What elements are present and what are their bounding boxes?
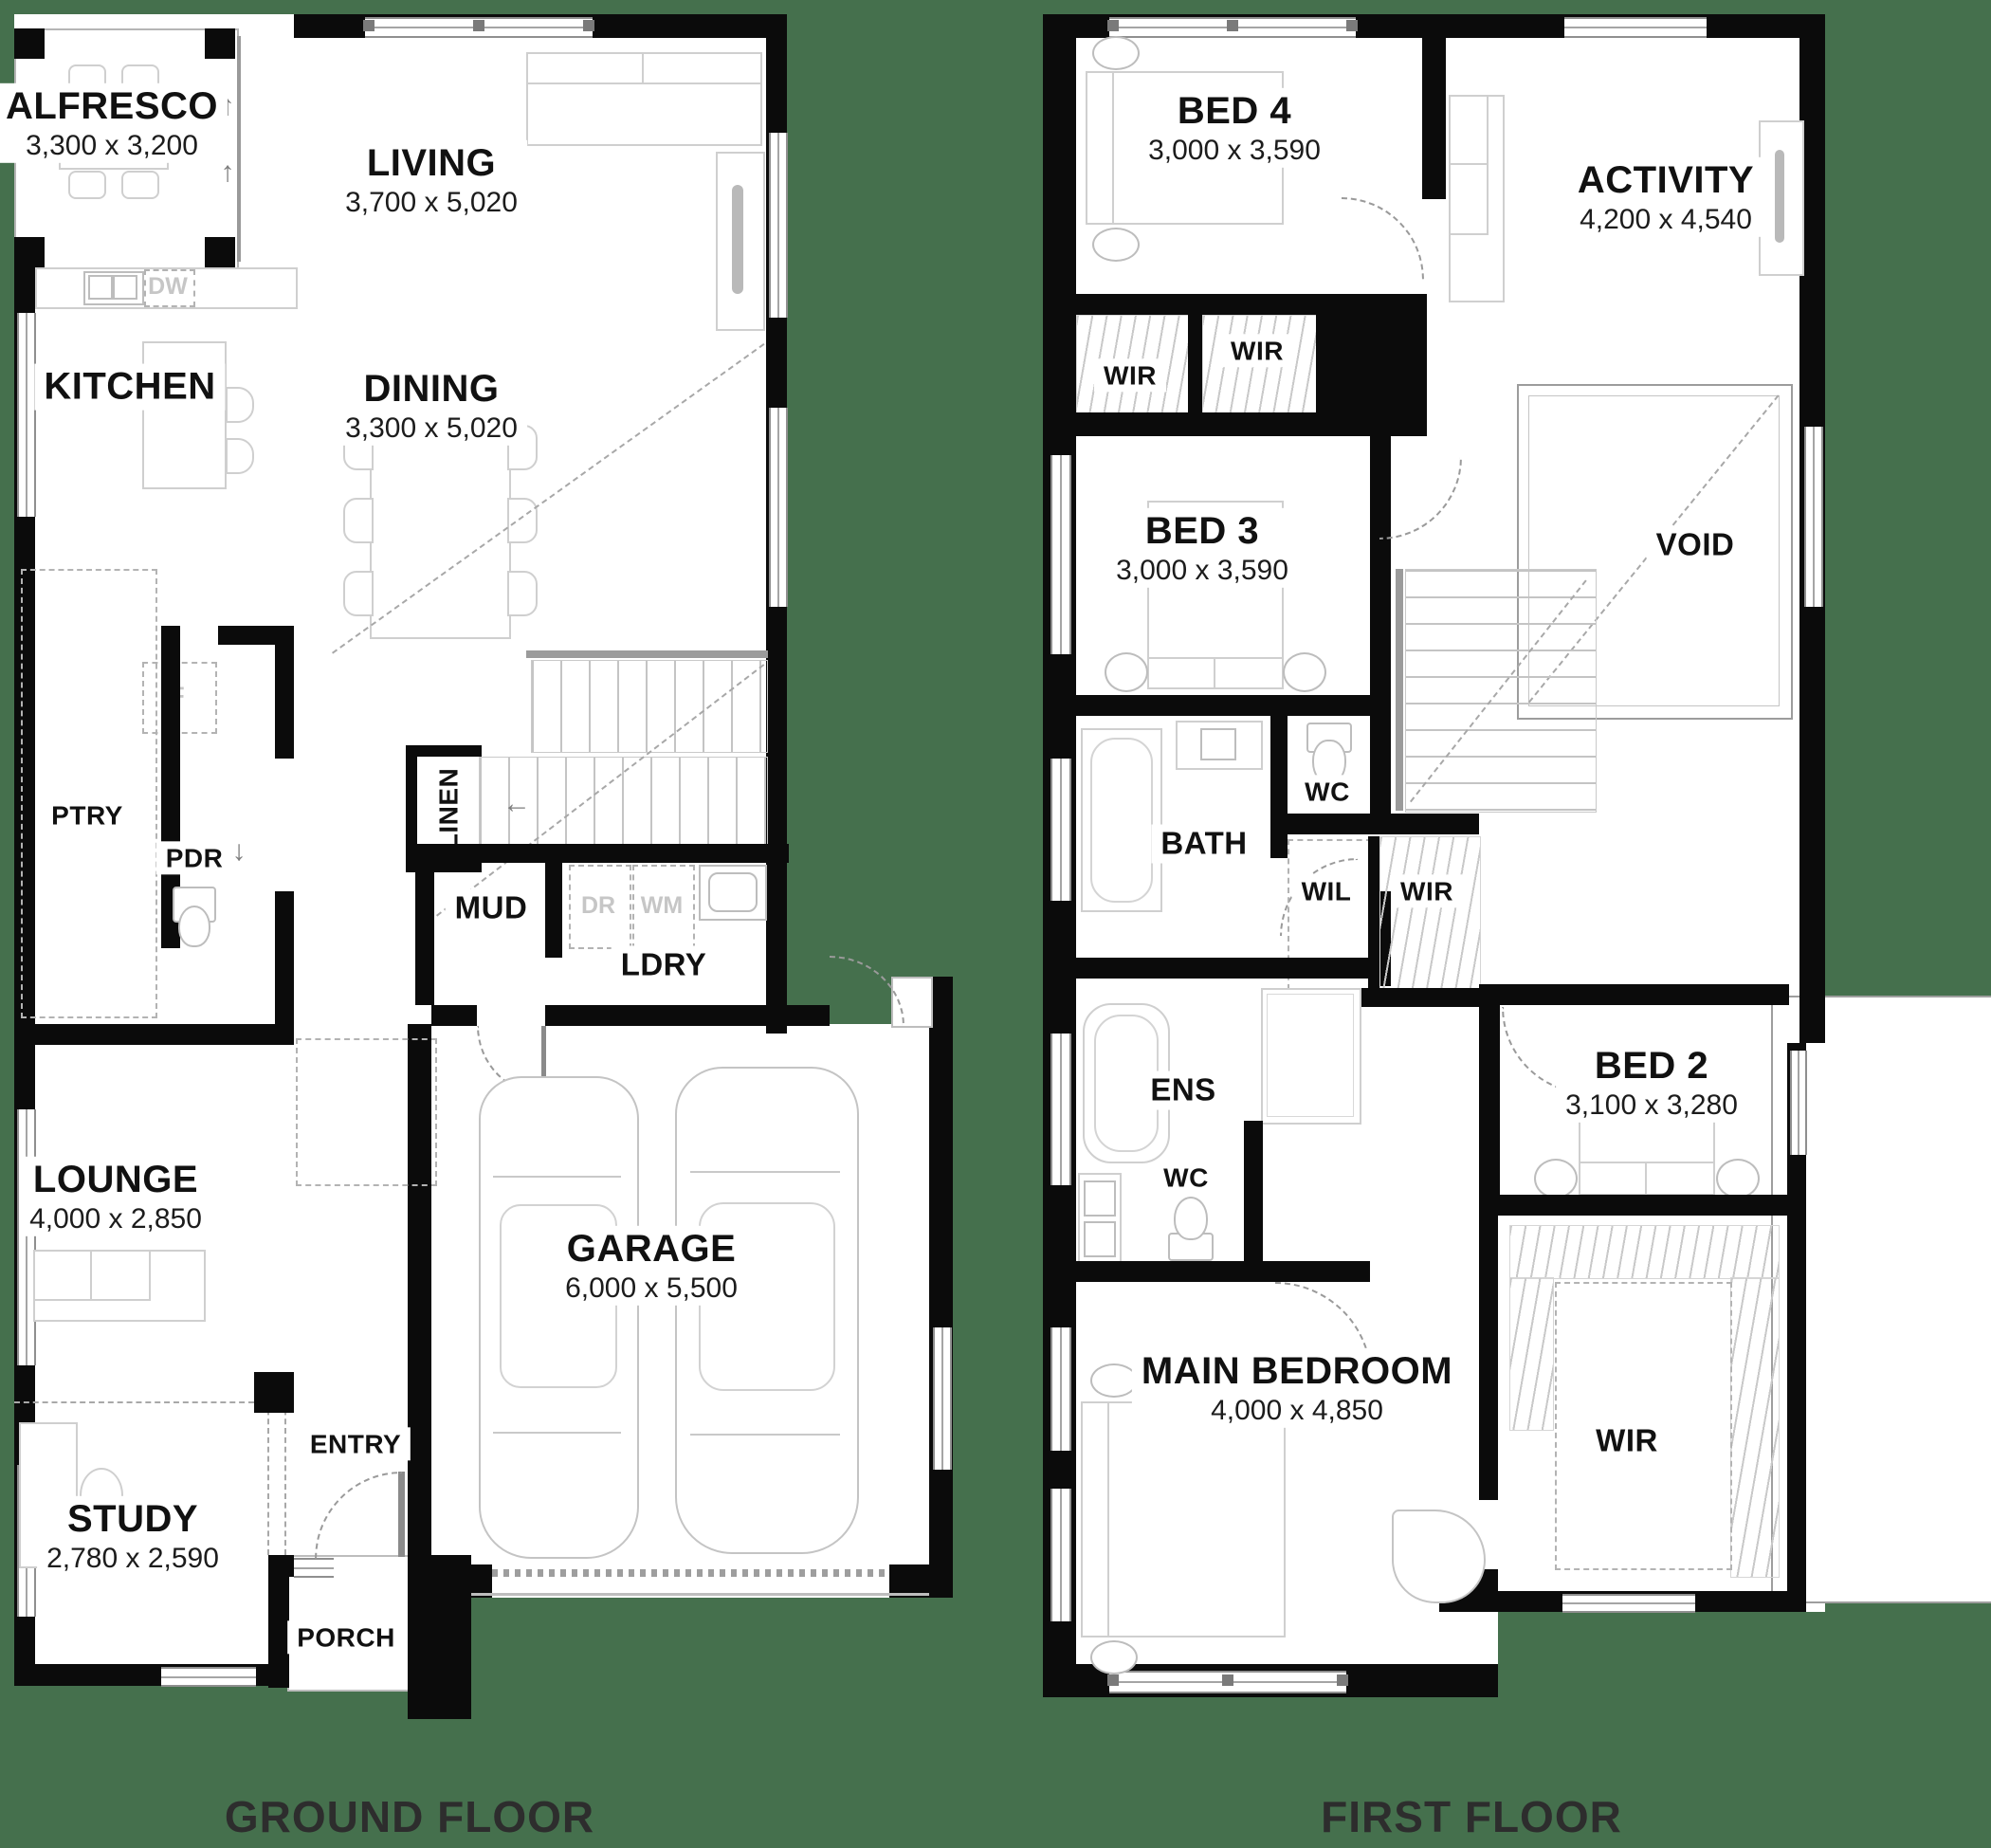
sofa-cushion bbox=[526, 52, 646, 84]
sofa-cushion bbox=[33, 1250, 94, 1301]
wall bbox=[431, 1005, 477, 1026]
room-label-wil: WIL bbox=[1292, 874, 1361, 907]
wardrobe bbox=[1509, 1277, 1554, 1431]
sliding-door-track bbox=[237, 36, 241, 262]
wall bbox=[1076, 958, 1370, 979]
wall bbox=[1188, 315, 1202, 412]
wall bbox=[929, 977, 953, 1598]
wall bbox=[545, 1005, 830, 1026]
window bbox=[933, 1327, 952, 1470]
wall bbox=[1043, 294, 1427, 315]
room-label-main-bedroom: MAIN BEDROOM4,000 x 4,850 bbox=[1132, 1348, 1462, 1428]
room-label-kitchen: KITCHEN bbox=[34, 364, 225, 411]
washer-label: WM bbox=[641, 892, 683, 919]
room-label-pdr: PDR bbox=[156, 841, 233, 874]
room-label-dining: DINING3,300 x 5,020 bbox=[336, 366, 527, 446]
room-label-ldry: LDRY bbox=[612, 946, 717, 985]
wall bbox=[205, 237, 235, 267]
window bbox=[1050, 455, 1071, 654]
room-label-bath: BATH bbox=[1151, 825, 1256, 864]
wall bbox=[1370, 716, 1391, 830]
window bbox=[17, 1109, 36, 1365]
room-label-void: VOID bbox=[1647, 526, 1744, 565]
car-rear-window bbox=[493, 1432, 621, 1434]
bed-headboard bbox=[1081, 1401, 1109, 1638]
room-label-mud: MUD bbox=[446, 889, 538, 928]
window bbox=[294, 1558, 334, 1578]
wall bbox=[1479, 1005, 1500, 1197]
sofa-cushion bbox=[1449, 95, 1489, 167]
driveway-edge bbox=[471, 1593, 929, 1596]
wall bbox=[545, 863, 562, 958]
window bbox=[769, 408, 788, 607]
window bbox=[1804, 427, 1823, 607]
room-label-porch: PORCH bbox=[287, 1620, 405, 1654]
stool bbox=[226, 438, 254, 474]
room-label-wc-ens: WC bbox=[1154, 1161, 1218, 1194]
bedside-table bbox=[1090, 1640, 1138, 1674]
vanity-sink bbox=[1084, 1221, 1116, 1257]
plan-base bbox=[14, 1034, 294, 1686]
wardrobe bbox=[1730, 1277, 1780, 1578]
plan-notch bbox=[1498, 1612, 1825, 1697]
stairs bbox=[531, 660, 768, 753]
floorplan-canvas: ↑ ↑ DW bbox=[0, 0, 1991, 1848]
ground-floor-title: GROUND FLOOR bbox=[225, 1791, 594, 1842]
window bbox=[17, 313, 36, 517]
bathtub-inner bbox=[1090, 738, 1153, 903]
wall bbox=[1422, 38, 1446, 199]
window bbox=[1790, 1051, 1807, 1155]
window-mullion bbox=[1107, 1674, 1119, 1686]
room-label-garage: GARAGE6,000 x 5,500 bbox=[556, 1226, 747, 1306]
sofa-cushion bbox=[642, 52, 762, 84]
window bbox=[1562, 1594, 1695, 1613]
window bbox=[769, 133, 788, 318]
bedside-table bbox=[1534, 1159, 1578, 1198]
stair-handrail bbox=[526, 650, 768, 658]
wall bbox=[275, 645, 294, 759]
bedside-table bbox=[1283, 652, 1326, 692]
wall bbox=[283, 1555, 294, 1577]
wall bbox=[14, 237, 45, 267]
shower-screen bbox=[1267, 994, 1354, 1117]
tv-icon bbox=[1775, 150, 1784, 243]
hall-arrow-icon: ↓ bbox=[232, 835, 247, 868]
bed-base bbox=[1579, 1162, 1649, 1196]
sofa-cushion bbox=[90, 1250, 151, 1301]
room-label-activity: ACTIVITY4,200 x 4,540 bbox=[1568, 157, 1763, 237]
stair-direction-arrow: ← bbox=[502, 788, 531, 820]
chair bbox=[507, 571, 538, 616]
chair bbox=[343, 571, 374, 616]
wall bbox=[14, 1024, 294, 1045]
room-label-alfresco: ALFRESCO3,300 x 3,200 bbox=[0, 83, 228, 163]
room-label-wc-bath: WC bbox=[1295, 775, 1360, 808]
sink-bowl bbox=[113, 275, 137, 300]
window bbox=[1050, 759, 1071, 901]
wall bbox=[1043, 695, 1375, 716]
room-label-bed2: BED 23,100 x 3,280 bbox=[1556, 1043, 1747, 1123]
dryer-label: DR bbox=[581, 892, 615, 919]
window-mullion bbox=[363, 20, 374, 31]
dashed-partition bbox=[14, 1401, 254, 1403]
window bbox=[1050, 1327, 1071, 1451]
room-label-ens: ENS bbox=[1141, 1071, 1225, 1110]
window-mullion bbox=[1107, 20, 1119, 31]
wall bbox=[205, 28, 235, 59]
room-label-ptry: PTRY bbox=[42, 798, 133, 832]
room-label-lounge: LOUNGE4,000 x 2,850 bbox=[20, 1157, 211, 1236]
stool bbox=[226, 387, 254, 423]
car-windshield bbox=[690, 1171, 840, 1173]
chair bbox=[507, 498, 538, 543]
wall bbox=[1285, 814, 1479, 834]
wardrobe bbox=[1379, 836, 1481, 990]
bedside-table bbox=[1092, 228, 1140, 262]
wall bbox=[1479, 1216, 1498, 1500]
wall bbox=[275, 891, 294, 1024]
room-label-wir: WIR bbox=[1094, 358, 1166, 392]
wall bbox=[14, 28, 45, 59]
window-mullion bbox=[473, 20, 484, 31]
wall bbox=[1479, 1195, 1787, 1216]
chair bbox=[121, 171, 159, 199]
room-label-bed3: BED 33,000 x 3,590 bbox=[1106, 508, 1298, 588]
stairs bbox=[1405, 569, 1597, 813]
window-mullion bbox=[1222, 1674, 1233, 1686]
room-label-wir: WIR bbox=[1391, 874, 1463, 907]
stair-handrail bbox=[1396, 569, 1403, 811]
first-floor-title: FIRST FLOOR bbox=[1321, 1791, 1622, 1842]
room-label-study: STUDY2,780 x 2,590 bbox=[37, 1496, 228, 1576]
wall bbox=[254, 1372, 294, 1413]
garage-door bbox=[492, 1569, 889, 1577]
car-rear-window bbox=[690, 1434, 840, 1436]
window-mullion bbox=[1337, 1674, 1348, 1686]
bed bbox=[1081, 1401, 1286, 1638]
window bbox=[1564, 17, 1707, 38]
window-mullion bbox=[1346, 20, 1358, 31]
room-label-bed4: BED 43,000 x 3,590 bbox=[1139, 88, 1330, 168]
sink-bowl bbox=[88, 275, 113, 300]
wall bbox=[1043, 412, 1318, 436]
bedside-table bbox=[1090, 1363, 1138, 1398]
window-mullion bbox=[583, 20, 594, 31]
window-mullion bbox=[1227, 20, 1238, 31]
chair bbox=[68, 171, 106, 199]
wall bbox=[218, 626, 294, 645]
vanity-sink bbox=[1084, 1180, 1116, 1217]
car-windshield bbox=[493, 1176, 621, 1178]
chair bbox=[343, 498, 374, 543]
sofa-cushion bbox=[1449, 163, 1489, 235]
wall bbox=[1479, 984, 1789, 1005]
room-label-entry: ENTRY bbox=[301, 1427, 411, 1460]
room-label-wir-main: WIR bbox=[1586, 1422, 1668, 1461]
toilet-bowl bbox=[178, 906, 210, 947]
entry-paving bbox=[296, 1038, 437, 1186]
window bbox=[161, 1667, 256, 1687]
window bbox=[1050, 1034, 1071, 1185]
wall bbox=[406, 745, 482, 757]
bed-headboard bbox=[1086, 71, 1114, 225]
window bbox=[1050, 1489, 1071, 1621]
wall bbox=[408, 1555, 471, 1719]
wall bbox=[1244, 1121, 1263, 1261]
laundry-sink-bowl bbox=[708, 872, 758, 912]
room-label-wir: WIR bbox=[1221, 334, 1293, 367]
bed-base bbox=[1147, 657, 1217, 689]
bedside-table bbox=[1105, 652, 1148, 692]
toilet-bowl bbox=[1174, 1197, 1208, 1240]
dishwasher-label: DW bbox=[148, 273, 188, 300]
bedside-table bbox=[1092, 36, 1140, 70]
wall bbox=[1270, 716, 1288, 858]
door-arc bbox=[830, 956, 904, 1026]
wall bbox=[415, 844, 789, 863]
wall bbox=[1316, 315, 1427, 436]
pantry-shelving bbox=[21, 569, 157, 1018]
bed-base bbox=[1214, 657, 1284, 689]
wardrobe bbox=[1509, 1225, 1780, 1279]
tv-icon bbox=[732, 185, 743, 294]
wall bbox=[1076, 1261, 1370, 1282]
room-label-living: LIVING3,700 x 5,020 bbox=[336, 140, 527, 220]
bed-base bbox=[1645, 1162, 1715, 1196]
bedside-table bbox=[1716, 1159, 1760, 1198]
wall bbox=[415, 863, 434, 1005]
vanity-sink bbox=[1200, 728, 1236, 760]
